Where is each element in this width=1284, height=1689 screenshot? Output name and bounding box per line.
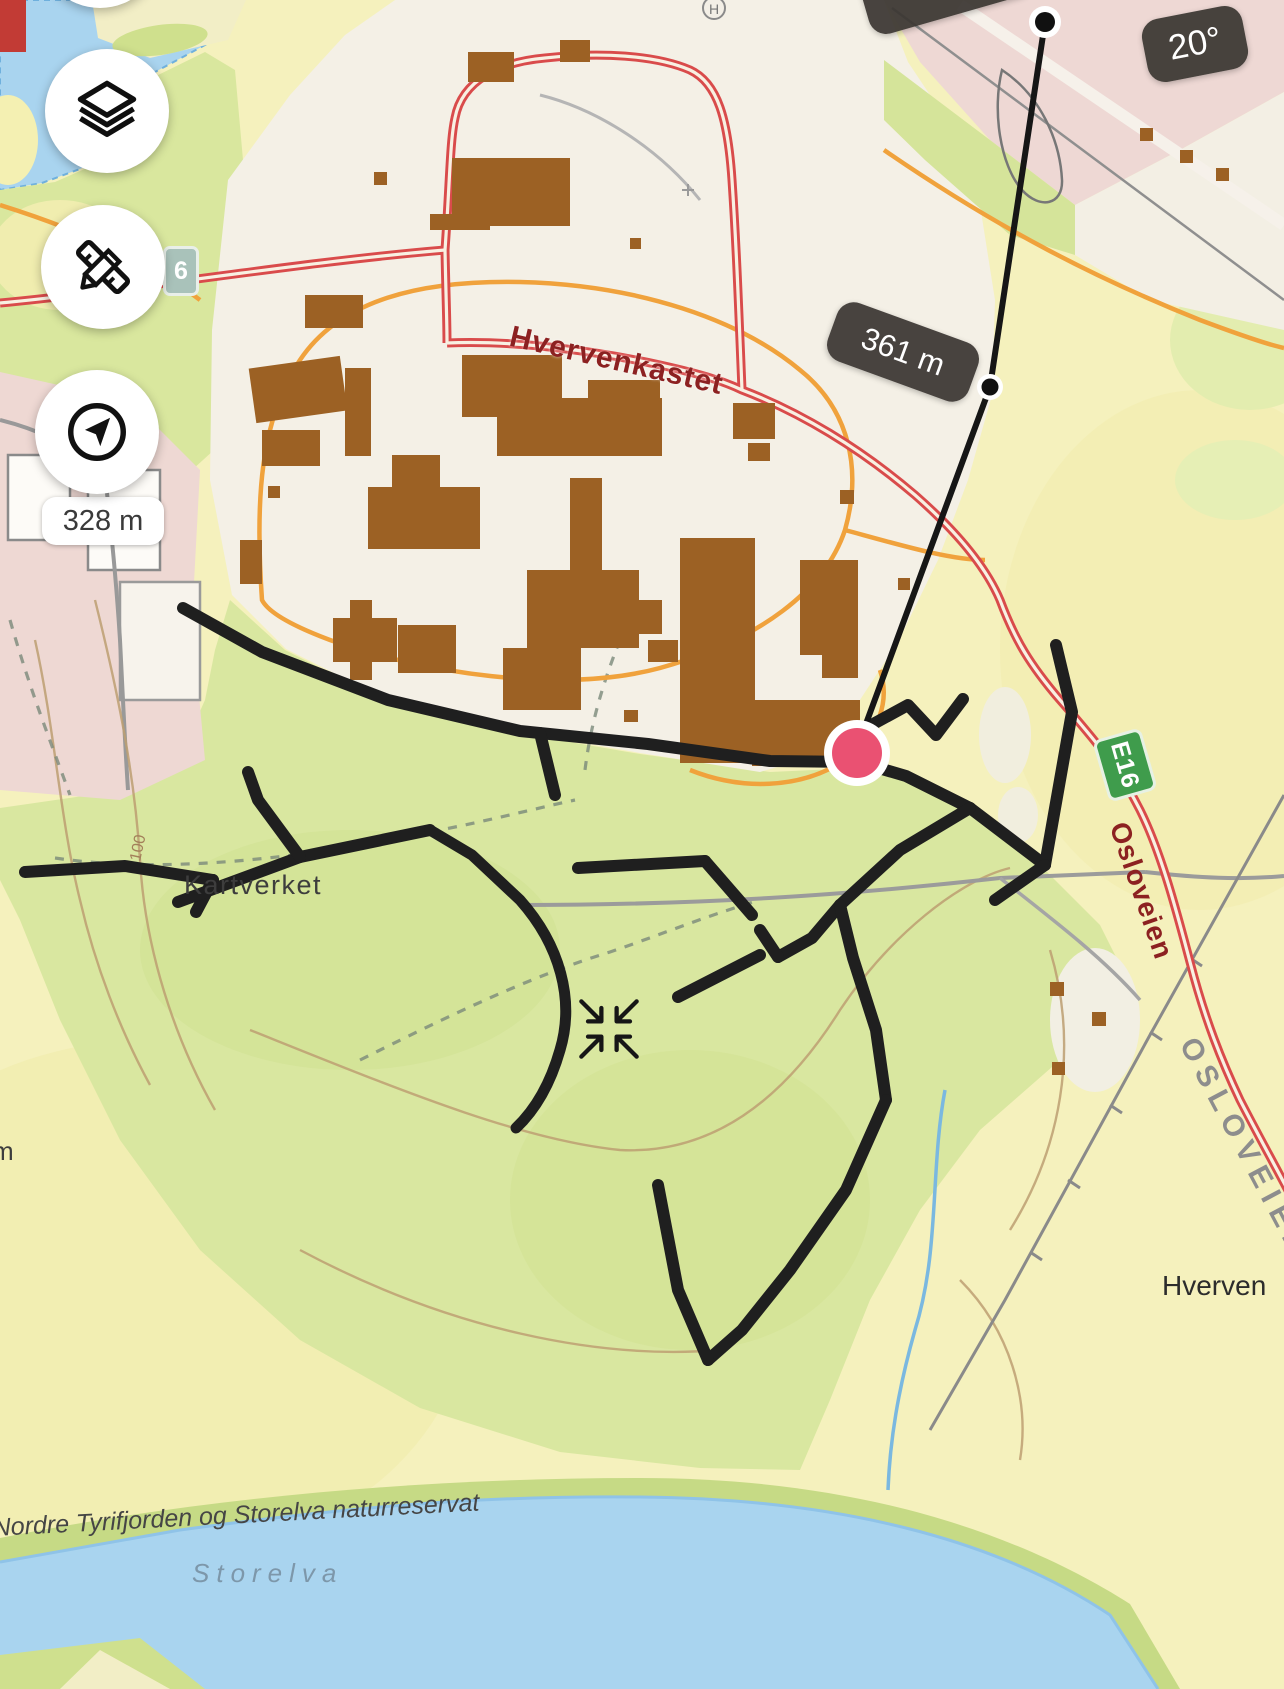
- compass-arrow-icon: [62, 397, 132, 467]
- measure-button[interactable]: [41, 205, 165, 329]
- layers-icon: [73, 77, 141, 145]
- compass-button[interactable]: [35, 370, 159, 494]
- hospital-symbol: H: [703, 0, 725, 19]
- elevation-pill: 328 m: [42, 497, 164, 545]
- map-canvas[interactable]: H 100 Hvervenkastet Ka: [0, 0, 1284, 1689]
- recenter-control[interactable]: [568, 988, 650, 1070]
- svg-text:H: H: [709, 1, 719, 17]
- recenter-arrows-icon: [568, 988, 650, 1070]
- layers-button[interactable]: [45, 49, 169, 173]
- ruler-pencil-icon: [68, 232, 138, 302]
- route-badge-6: 6: [163, 246, 199, 296]
- position-marker[interactable]: [824, 720, 890, 786]
